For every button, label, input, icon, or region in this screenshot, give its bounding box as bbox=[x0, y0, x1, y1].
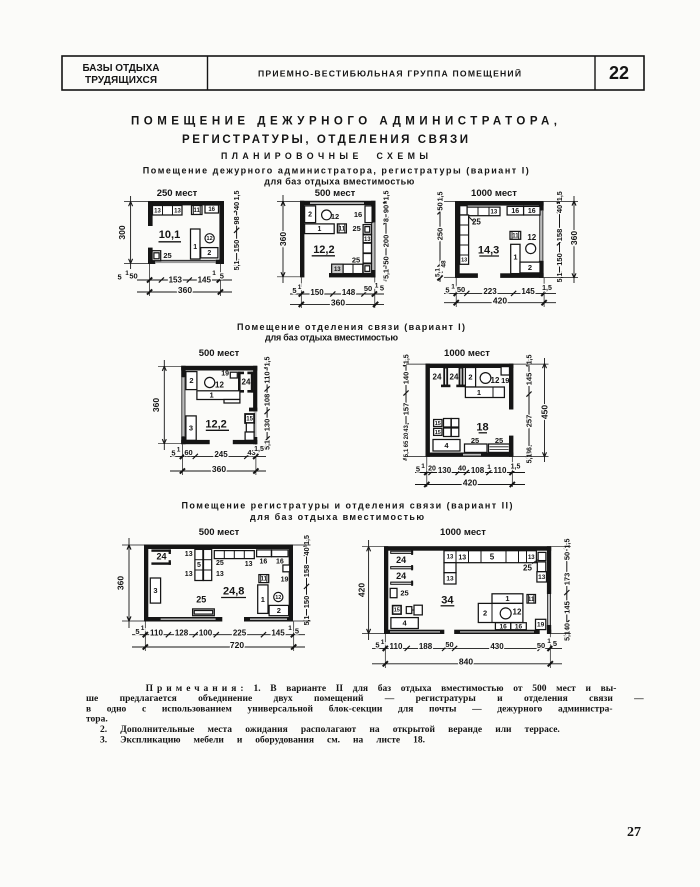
svg-text:25: 25 bbox=[352, 255, 360, 264]
svg-text:24,8: 24,8 bbox=[223, 585, 244, 597]
svg-text:50: 50 bbox=[436, 202, 445, 210]
svg-text:16: 16 bbox=[354, 210, 362, 219]
svg-text:13: 13 bbox=[446, 576, 454, 583]
svg-text:2: 2 bbox=[528, 263, 532, 272]
svg-text:720: 720 bbox=[230, 640, 244, 650]
svg-text:1: 1 bbox=[477, 388, 481, 397]
svg-text:5,1: 5,1 bbox=[434, 268, 441, 277]
svg-text:1: 1 bbox=[288, 625, 292, 632]
svg-text:1,5: 1,5 bbox=[403, 354, 410, 364]
svg-text:1: 1 bbox=[141, 625, 145, 632]
svg-text:24: 24 bbox=[396, 555, 406, 565]
svg-text:34: 34 bbox=[441, 594, 454, 606]
svg-text:13: 13 bbox=[216, 571, 224, 578]
svg-text:150: 150 bbox=[302, 596, 311, 609]
svg-text:12,2: 12,2 bbox=[313, 244, 334, 256]
svg-text:50: 50 bbox=[537, 641, 545, 650]
svg-text:5,1: 5,1 bbox=[234, 261, 241, 271]
svg-text:11: 11 bbox=[512, 234, 519, 240]
svg-text:2: 2 bbox=[308, 211, 312, 218]
svg-text:40: 40 bbox=[302, 547, 311, 555]
svg-text:145: 145 bbox=[271, 628, 285, 637]
svg-text:12: 12 bbox=[491, 376, 500, 385]
svg-text:ПРИЕМНО-ВЕСТИБЮЛЬНАЯ ГРУППА: ПРИЕМНО-ВЕСТИБЮЛЬНАЯ ГРУППА ПОМЕЩЕНИЙ bbox=[258, 68, 521, 79]
svg-text:24: 24 bbox=[433, 372, 442, 381]
svg-text:108: 108 bbox=[263, 394, 272, 407]
svg-text:5: 5 bbox=[416, 465, 420, 474]
svg-text:ТРУДЯЩИХСЯ: ТРУДЯЩИХСЯ bbox=[85, 75, 157, 86]
svg-text:13: 13 bbox=[528, 555, 535, 561]
svg-text:25: 25 bbox=[216, 560, 224, 567]
svg-text:1: 1 bbox=[210, 391, 214, 400]
svg-text:100: 100 bbox=[199, 628, 213, 637]
svg-text:158: 158 bbox=[555, 229, 564, 242]
svg-text:50: 50 bbox=[364, 284, 372, 293]
svg-text:12: 12 bbox=[275, 595, 281, 601]
svg-text:2: 2 bbox=[189, 376, 193, 385]
svg-text:1: 1 bbox=[547, 638, 551, 645]
svg-text:25: 25 bbox=[472, 218, 481, 227]
svg-text:25: 25 bbox=[400, 589, 408, 598]
svg-text:1: 1 bbox=[505, 594, 509, 603]
svg-text:5,1: 5,1 bbox=[304, 616, 311, 626]
svg-text:19: 19 bbox=[281, 577, 289, 584]
svg-text:5: 5 bbox=[553, 639, 557, 648]
svg-text:5: 5 bbox=[445, 286, 449, 295]
svg-text:360: 360 bbox=[331, 297, 345, 307]
svg-text:150: 150 bbox=[310, 288, 324, 297]
svg-text:16: 16 bbox=[260, 558, 268, 565]
svg-text:153: 153 bbox=[169, 275, 183, 284]
svg-text:13: 13 bbox=[491, 210, 498, 216]
svg-text:для баз отдыха вместимостью: для баз отдыха вместимостью bbox=[250, 512, 424, 522]
svg-text:13: 13 bbox=[245, 561, 253, 568]
svg-text:12: 12 bbox=[207, 236, 213, 242]
svg-text:16: 16 bbox=[208, 207, 215, 213]
svg-text:ПЛАНИРОВОЧНЫЕ СХЕМЫ: ПЛАНИРОВОЧНЫЕ СХЕМЫ bbox=[221, 151, 428, 161]
svg-text:14,3: 14,3 bbox=[478, 244, 499, 256]
svg-text:110: 110 bbox=[150, 628, 163, 637]
svg-text:24: 24 bbox=[242, 378, 251, 387]
svg-text:25: 25 bbox=[353, 224, 361, 233]
svg-text:5: 5 bbox=[375, 641, 379, 650]
svg-text:110: 110 bbox=[263, 371, 272, 383]
svg-text:1,5: 1,5 bbox=[265, 357, 272, 367]
svg-text:19: 19 bbox=[537, 622, 545, 629]
svg-text:128: 128 bbox=[175, 628, 189, 637]
svg-text:15: 15 bbox=[246, 417, 253, 423]
svg-text:157: 157 bbox=[402, 403, 411, 416]
svg-text:1,5: 1,5 bbox=[526, 355, 533, 365]
svg-text:22: 22 bbox=[609, 63, 629, 83]
svg-text:225: 225 bbox=[233, 628, 247, 637]
svg-text:500 мест: 500 мест bbox=[199, 348, 240, 359]
svg-text:11: 11 bbox=[194, 208, 201, 214]
svg-text:360: 360 bbox=[116, 576, 126, 590]
svg-text:16: 16 bbox=[276, 558, 284, 565]
svg-text:16: 16 bbox=[511, 208, 519, 215]
svg-text:2: 2 bbox=[207, 250, 211, 257]
svg-text:145: 145 bbox=[198, 275, 212, 284]
svg-text:1: 1 bbox=[451, 283, 455, 290]
svg-text:5,1: 5,1 bbox=[403, 448, 410, 457]
svg-text:420: 420 bbox=[463, 477, 477, 487]
svg-text:24: 24 bbox=[396, 571, 406, 581]
svg-text:10,1: 10,1 bbox=[159, 229, 180, 241]
svg-text:5: 5 bbox=[197, 562, 201, 569]
svg-text:420: 420 bbox=[493, 296, 507, 306]
svg-text:188: 188 bbox=[419, 642, 433, 651]
svg-text:1000 мест: 1000 мест bbox=[444, 348, 490, 359]
svg-text:5,1: 5,1 bbox=[383, 269, 390, 279]
svg-text:15: 15 bbox=[435, 430, 441, 436]
svg-text:в одно с использованием универ: в одно с использованием универсальной бл… bbox=[86, 703, 613, 714]
svg-text:24: 24 bbox=[156, 552, 166, 562]
svg-text:110: 110 bbox=[390, 642, 403, 651]
svg-text:8: 8 bbox=[383, 218, 390, 222]
svg-text:1000 мест: 1000 мест bbox=[471, 188, 517, 199]
svg-text:65: 65 bbox=[404, 440, 410, 447]
svg-text:5: 5 bbox=[380, 284, 384, 293]
svg-text:ше предлагается объединение дв: ше предлагается объединение двух помещен… bbox=[86, 693, 644, 704]
svg-text:1: 1 bbox=[513, 253, 517, 262]
svg-text:50: 50 bbox=[382, 256, 391, 264]
svg-text:15: 15 bbox=[394, 608, 400, 614]
svg-text:5: 5 bbox=[292, 286, 296, 295]
svg-text:1,5: 1,5 bbox=[511, 463, 521, 470]
svg-text:13: 13 bbox=[447, 555, 454, 561]
svg-text:90: 90 bbox=[382, 205, 391, 213]
svg-text:250 мест: 250 мест bbox=[157, 188, 198, 199]
svg-text:Помещение регистратуры и отдел: Помещение регистратуры и отделения связи… bbox=[182, 501, 513, 511]
svg-text:БАЗЫ ОТДЫХА: БАЗЫ ОТДЫХА bbox=[83, 63, 160, 74]
svg-text:1: 1 bbox=[317, 226, 321, 233]
svg-text:2: 2 bbox=[483, 609, 487, 618]
svg-text:3: 3 bbox=[153, 586, 157, 595]
svg-text:Помещение дежурного администра: Помещение дежурного администратора, реги… bbox=[143, 166, 529, 176]
svg-text:1: 1 bbox=[193, 244, 197, 251]
svg-text:1,5: 1,5 bbox=[304, 535, 311, 545]
svg-text:360: 360 bbox=[151, 398, 161, 412]
svg-text:98: 98 bbox=[232, 216, 241, 224]
svg-text:1. В варианте II для баз отдых: 1. В варианте II для баз отдыха вместимо… bbox=[254, 683, 617, 694]
svg-text:2: 2 bbox=[277, 606, 281, 615]
svg-text:200: 200 bbox=[382, 235, 391, 248]
svg-text:5: 5 bbox=[135, 627, 139, 636]
svg-text:13: 13 bbox=[461, 258, 467, 264]
svg-text:500 мест: 500 мест bbox=[315, 188, 356, 199]
svg-text:148: 148 bbox=[342, 288, 356, 297]
svg-text:1: 1 bbox=[212, 270, 216, 277]
svg-text:360: 360 bbox=[569, 231, 579, 245]
svg-text:145: 145 bbox=[562, 601, 571, 614]
svg-text:12,2: 12,2 bbox=[205, 418, 226, 430]
svg-text:40: 40 bbox=[232, 202, 241, 210]
svg-text:5: 5 bbox=[118, 273, 122, 282]
svg-text:1,5: 1,5 bbox=[234, 191, 241, 201]
svg-text:360: 360 bbox=[178, 285, 192, 295]
svg-text:16: 16 bbox=[499, 624, 507, 631]
svg-text:145: 145 bbox=[521, 287, 535, 296]
svg-text:5: 5 bbox=[490, 552, 495, 561]
svg-text:13: 13 bbox=[174, 208, 181, 214]
svg-text:27: 27 bbox=[627, 825, 641, 840]
svg-text:тора.: тора. bbox=[86, 715, 108, 725]
svg-text:20: 20 bbox=[428, 465, 436, 472]
svg-text:150: 150 bbox=[555, 253, 564, 266]
svg-text:420: 420 bbox=[357, 583, 367, 597]
svg-text:50: 50 bbox=[445, 640, 453, 649]
svg-text:3: 3 bbox=[189, 424, 193, 433]
svg-text:20: 20 bbox=[404, 432, 410, 439]
svg-text:500 мест: 500 мест bbox=[199, 527, 240, 538]
svg-text:25: 25 bbox=[163, 251, 171, 260]
svg-text:16: 16 bbox=[528, 208, 536, 215]
svg-text:19: 19 bbox=[501, 376, 509, 385]
svg-text:5: 5 bbox=[220, 272, 224, 281]
svg-text:18: 18 bbox=[476, 421, 488, 433]
svg-text:43: 43 bbox=[404, 425, 410, 432]
svg-text:13: 13 bbox=[185, 551, 193, 558]
svg-text:13: 13 bbox=[185, 571, 193, 578]
svg-text:430: 430 bbox=[490, 642, 504, 651]
svg-text:108: 108 bbox=[471, 466, 485, 475]
svg-text:1: 1 bbox=[381, 639, 385, 646]
svg-text:24: 24 bbox=[450, 372, 459, 381]
svg-text:1,5: 1,5 bbox=[437, 192, 444, 202]
svg-text:50: 50 bbox=[129, 272, 137, 281]
svg-text:1000 мест: 1000 мест bbox=[440, 527, 486, 538]
svg-text:1: 1 bbox=[375, 282, 379, 289]
svg-text:2: 2 bbox=[468, 373, 472, 382]
svg-text:1: 1 bbox=[421, 463, 425, 470]
svg-text:5: 5 bbox=[295, 626, 299, 635]
svg-text:140: 140 bbox=[402, 372, 411, 385]
svg-text:25: 25 bbox=[196, 595, 206, 605]
svg-text:13: 13 bbox=[458, 555, 466, 562]
svg-text:1,5: 1,5 bbox=[542, 285, 552, 292]
svg-text:12: 12 bbox=[331, 212, 339, 221]
svg-text:5: 5 bbox=[171, 449, 175, 458]
svg-text:1,5: 1,5 bbox=[383, 191, 390, 201]
svg-text:13: 13 bbox=[154, 208, 161, 214]
svg-text:25: 25 bbox=[523, 563, 532, 572]
svg-text:173: 173 bbox=[562, 573, 571, 586]
svg-text:145: 145 bbox=[525, 373, 534, 386]
svg-text:2. Дополнительные места ожидан: 2. Дополнительные места ожидания распола… bbox=[100, 724, 560, 735]
svg-text:12: 12 bbox=[513, 607, 522, 616]
svg-text:1,5: 1,5 bbox=[557, 191, 564, 201]
svg-text:РЕГИСТРАТУРЫ, ОТДЕЛЕНИЯ СВЯЗ: РЕГИСТРАТУРЫ, ОТДЕЛЕНИЯ СВЯЗИ bbox=[182, 134, 468, 146]
svg-text:40: 40 bbox=[458, 464, 466, 473]
svg-text:300: 300 bbox=[117, 225, 127, 239]
svg-text:158: 158 bbox=[302, 565, 311, 578]
svg-text:245: 245 bbox=[214, 450, 228, 459]
svg-text:19: 19 bbox=[221, 370, 229, 377]
svg-text:1: 1 bbox=[177, 446, 181, 453]
svg-text:Помещение отделения связи (вар: Помещение отделения связи (вариант I) bbox=[237, 322, 465, 332]
svg-text:1: 1 bbox=[298, 284, 302, 291]
svg-text:для баз отдыха вместимостью: для баз отдыха вместимостью bbox=[264, 177, 414, 187]
svg-text:Примечания:: Примечания: bbox=[146, 684, 248, 694]
svg-text:5,1: 5,1 bbox=[564, 631, 571, 641]
svg-text:11: 11 bbox=[528, 597, 535, 603]
svg-text:11: 11 bbox=[261, 577, 268, 583]
svg-text:257: 257 bbox=[525, 415, 534, 428]
svg-text:50: 50 bbox=[562, 552, 571, 560]
svg-text:360: 360 bbox=[278, 232, 288, 246]
svg-text:15: 15 bbox=[435, 421, 441, 427]
svg-text:3. Экспликацию мебели и оборуд: 3. Экспликацию мебели и оборудования см.… bbox=[100, 734, 425, 745]
svg-text:450: 450 bbox=[540, 405, 550, 419]
svg-text:1: 1 bbox=[487, 464, 491, 471]
svg-text:13: 13 bbox=[334, 267, 341, 273]
svg-text:13: 13 bbox=[364, 237, 371, 243]
svg-text:130: 130 bbox=[438, 466, 452, 475]
svg-text:12: 12 bbox=[527, 233, 536, 242]
svg-text:840: 840 bbox=[459, 657, 473, 667]
svg-text:250: 250 bbox=[436, 228, 445, 241]
svg-text:40: 40 bbox=[555, 205, 564, 213]
svg-text:360: 360 bbox=[212, 464, 226, 474]
svg-text:11: 11 bbox=[339, 227, 346, 233]
svg-text:110: 110 bbox=[494, 466, 507, 475]
svg-text:50: 50 bbox=[457, 285, 465, 294]
svg-text:5,1: 5,1 bbox=[265, 440, 272, 450]
svg-text:16: 16 bbox=[515, 624, 523, 631]
svg-text:48: 48 bbox=[440, 260, 447, 268]
svg-text:60: 60 bbox=[184, 448, 192, 457]
svg-text:ПОМЕЩЕНИЕ ДЕЖУРНОГО АДМИНИСТ: ПОМЕЩЕНИЕ ДЕЖУРНОГО АДМИНИСТРАТОРА, bbox=[131, 116, 557, 128]
svg-text:13: 13 bbox=[538, 574, 546, 581]
svg-text:5,1: 5,1 bbox=[526, 454, 533, 464]
svg-text:40: 40 bbox=[564, 623, 571, 631]
svg-text:1: 1 bbox=[261, 595, 265, 604]
svg-text:150: 150 bbox=[232, 240, 241, 253]
svg-text:для баз отдыха вместимостью: для баз отдыха вместимостью bbox=[265, 333, 398, 343]
svg-text:1,5: 1,5 bbox=[254, 446, 264, 453]
svg-text:130: 130 bbox=[263, 419, 272, 432]
svg-text:12: 12 bbox=[215, 380, 224, 389]
